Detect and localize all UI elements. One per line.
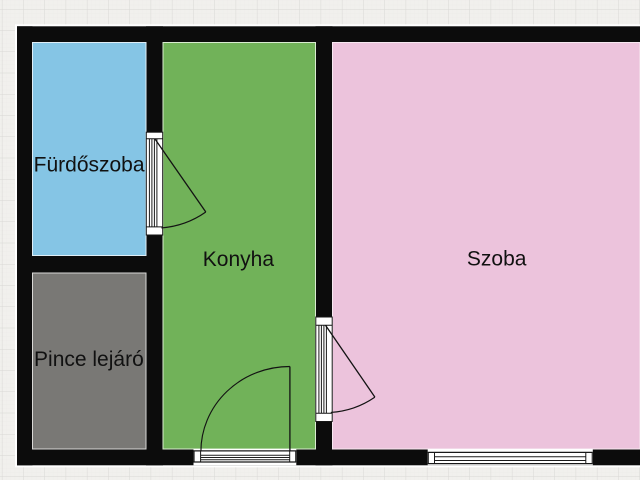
svg-text:Konyha: Konyha	[203, 248, 275, 271]
svg-text:Szoba: Szoba	[467, 248, 527, 271]
svg-text:Fürdőszoba: Fürdőszoba	[34, 153, 145, 176]
svg-text:Pince lejáró: Pince lejáró	[34, 348, 144, 371]
